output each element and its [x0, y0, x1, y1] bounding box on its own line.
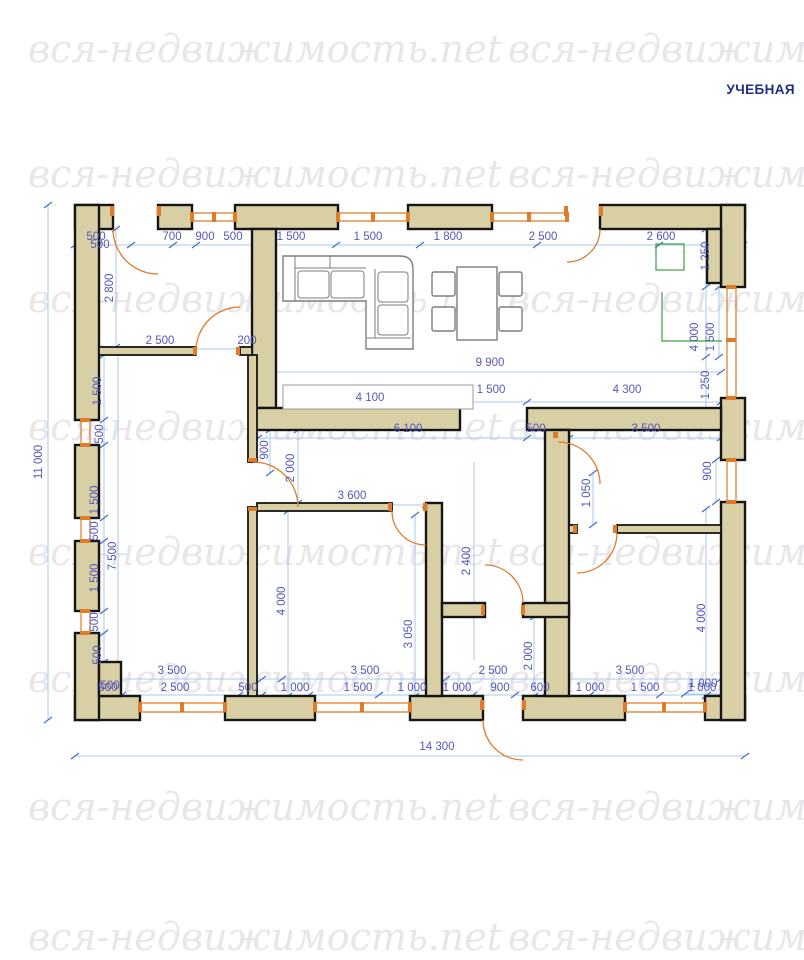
- dimension-label: 500: [92, 645, 104, 664]
- dimension-label: 2 500: [529, 231, 558, 243]
- dimension-label: 4 300: [613, 384, 642, 396]
- chair: [499, 272, 522, 296]
- dimension-label: 500: [89, 521, 101, 540]
- dimension-label: 3 500: [616, 665, 645, 677]
- dimension-label: 3 500: [351, 665, 380, 677]
- chair: [432, 272, 455, 296]
- dimension-label: 4 000: [696, 604, 708, 633]
- watermark-text: вся-недвижимость.net: [28, 152, 503, 196]
- dimension-label: 3 600: [338, 490, 367, 502]
- dimension-label: 1 050: [581, 479, 593, 508]
- dimension-label: 2 000: [523, 642, 535, 671]
- kitchen-sink: [656, 244, 684, 270]
- training-badge: УЧЕБНАЯ: [726, 82, 795, 97]
- watermark-text: вся-недвижимость.net: [508, 277, 804, 321]
- dimension-label: 11 000: [33, 445, 45, 479]
- dimension-label: 1 250: [700, 242, 712, 271]
- chair: [499, 307, 522, 331]
- dimension-label: 2 400: [461, 547, 473, 576]
- dimension-label: 9 900: [476, 357, 505, 369]
- dimension-label: 3 500: [158, 665, 187, 677]
- floor-plan-page: вся-недвижимость.netвся-недвижимость.net…: [0, 0, 804, 960]
- dimension-label: 14 300: [419, 741, 454, 753]
- dimension-label: 500: [94, 424, 106, 443]
- dimension-label: 2 600: [647, 231, 676, 243]
- dimension-label: 1 800: [434, 231, 463, 243]
- dimension-label: 1 500: [344, 682, 373, 694]
- dimension-label: 200: [237, 335, 256, 347]
- dimension-label: 1 000: [688, 682, 717, 694]
- dimension-label: 1 250: [700, 371, 712, 400]
- dimension-label: 3 050: [403, 620, 415, 649]
- dimension-label: 900: [702, 461, 714, 480]
- watermark-text: вся-недвижимость.net: [508, 152, 804, 196]
- dimension-label: 1 500: [705, 323, 717, 352]
- watermark-text: вся-недвижимость.net: [508, 915, 804, 959]
- dimension-label: 1 000: [576, 682, 605, 694]
- chair: [432, 307, 455, 331]
- dimension-label: 1 500: [92, 377, 104, 406]
- dimension-label: 3 500: [632, 423, 661, 435]
- dimension-label: 2 500: [479, 665, 508, 677]
- watermark-text: вся-недвижимость.net: [28, 785, 503, 829]
- dimension-label: 4 000: [689, 323, 701, 352]
- dimension-label: 900: [195, 231, 214, 243]
- dimension-label: 500: [526, 423, 545, 435]
- watermark-layer: вся-недвижимость.netвся-недвижимость.net…: [28, 27, 804, 959]
- dimension-label: 1 000: [398, 682, 427, 694]
- watermark-text: вся-недвижимость.net: [28, 915, 503, 959]
- dimension-label: 900: [490, 682, 509, 694]
- watermark-text: вся-недвижимость.net: [28, 27, 503, 71]
- dining-table: [457, 267, 497, 340]
- dimension-label: 700: [162, 231, 181, 243]
- dimension-label: 2 800: [104, 274, 116, 303]
- dimension-label: 1 500: [631, 682, 660, 694]
- dimension-label: 500: [98, 682, 117, 694]
- dimension-label: 2 500: [146, 335, 175, 347]
- dimension-label: 500: [89, 612, 101, 631]
- dimension-label: 600: [530, 682, 549, 694]
- dimension-label: 500: [238, 682, 257, 694]
- dimension-label: 1 500: [89, 486, 101, 515]
- dimension-label: 500: [223, 231, 242, 243]
- dimension-label: 2 500: [161, 682, 190, 694]
- dimension-label: 1 500: [354, 231, 383, 243]
- dimension-label: 1 000: [443, 682, 472, 694]
- dimension-label: 1 500: [277, 231, 306, 243]
- dimension-label: 1 000: [281, 682, 310, 694]
- dimension-label: 4 100: [356, 392, 385, 404]
- dimension-label: 500: [90, 239, 109, 251]
- watermark-text: вся-недвижимость.net: [508, 785, 804, 829]
- dimension-label: 2 000: [285, 454, 297, 483]
- dimension-label: 1 500: [89, 564, 101, 593]
- dimension-label: 4 000: [276, 587, 288, 616]
- dimension-label: 1 500: [477, 384, 506, 396]
- floor-plan-drawing: вся-недвижимость.netвся-недвижимость.net…: [0, 0, 804, 960]
- dimension-label: 900: [259, 440, 271, 459]
- dimension-label: 7 500: [107, 542, 119, 571]
- dimension-label: 6 100: [394, 423, 423, 435]
- watermark-text: вся-недвижимость.net: [508, 27, 804, 71]
